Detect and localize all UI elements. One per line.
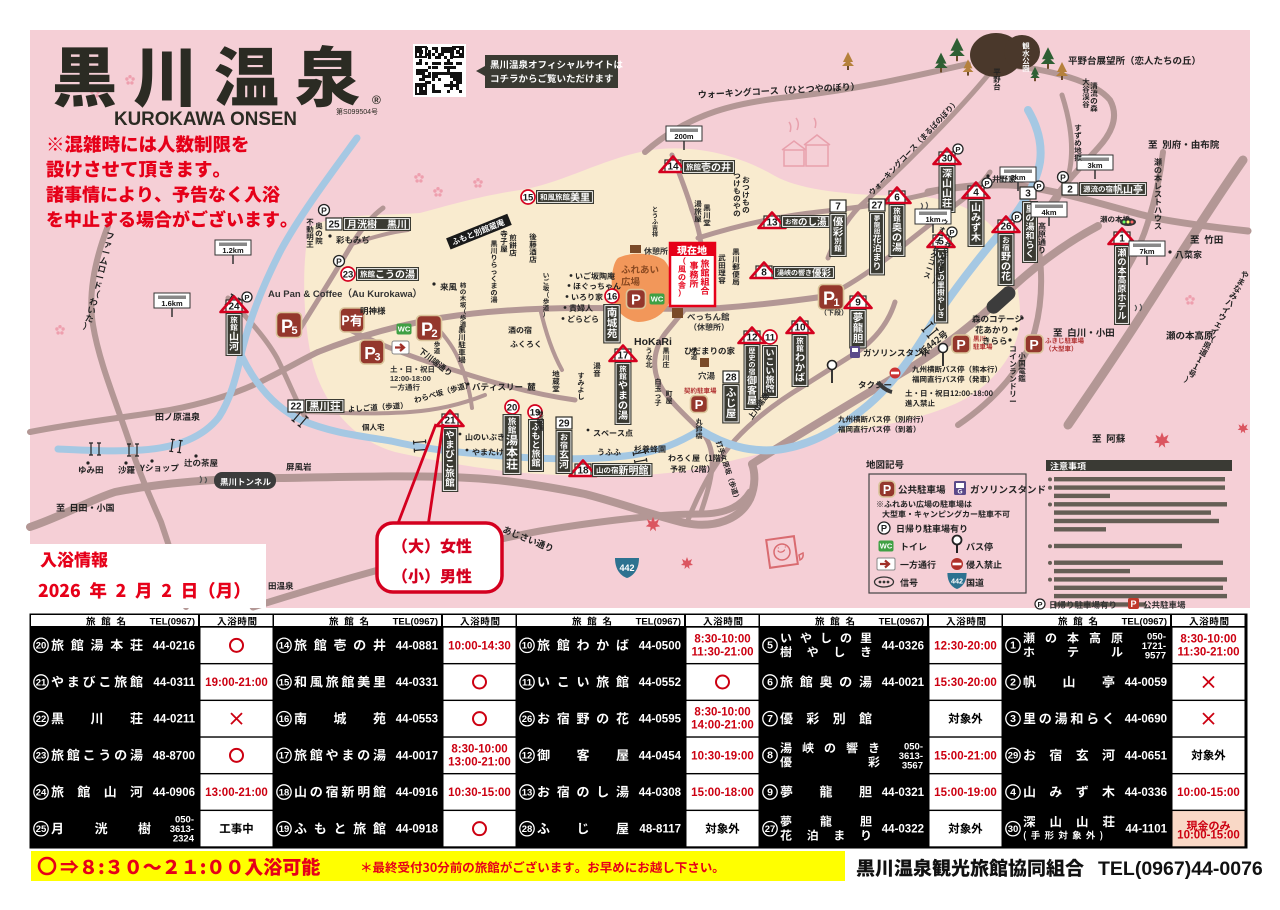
svg-text:3: 3 <box>1025 188 1031 199</box>
svg-text:442: 442 <box>951 576 963 585</box>
svg-text:44-0651: 44-0651 <box>1125 750 1168 762</box>
svg-text:21: 21 <box>36 677 47 688</box>
svg-text:15:30-20:00: 15:30-20:00 <box>934 677 997 689</box>
svg-text:20: 20 <box>36 641 47 652</box>
svg-text:15:00-21:00: 15:00-21:00 <box>934 750 997 762</box>
svg-text:44-0553: 44-0553 <box>396 714 438 726</box>
svg-text:7km: 7km <box>1139 247 1154 256</box>
svg-text:29: 29 <box>558 418 570 429</box>
svg-text:3: 3 <box>374 352 380 364</box>
svg-text:44-0216: 44-0216 <box>153 640 195 652</box>
svg-text:HoKaRi: HoKaRi <box>634 336 672 348</box>
svg-text:29: 29 <box>1008 751 1019 762</box>
svg-text:WC: WC <box>651 295 664 304</box>
svg-text:TEL(0967): TEL(0967) <box>1122 617 1167 628</box>
svg-text:P: P <box>1036 182 1041 191</box>
svg-text:13:00-21:00: 13:00-21:00 <box>205 787 268 799</box>
svg-text:44-0021: 44-0021 <box>882 677 925 689</box>
svg-text:KUROKAWA ONSEN: KUROKAWA ONSEN <box>114 109 297 130</box>
svg-text:44-0454: 44-0454 <box>639 750 682 762</box>
svg-text:10:00-15:00: 10:00-15:00 <box>1177 787 1240 799</box>
svg-text:P: P <box>1014 213 1019 222</box>
svg-text:®: ® <box>372 93 381 107</box>
svg-text:P: P <box>883 483 891 497</box>
svg-text:P: P <box>881 524 887 534</box>
svg-text:16: 16 <box>279 714 290 725</box>
svg-text:10: 10 <box>522 641 533 652</box>
svg-text:TEL(0967): TEL(0967) <box>879 617 924 628</box>
svg-text:15: 15 <box>523 192 534 203</box>
svg-text:19: 19 <box>530 407 541 418</box>
svg-text:P: P <box>984 179 989 188</box>
svg-text:4km: 4km <box>1041 208 1056 217</box>
svg-text:9: 9 <box>767 786 773 798</box>
svg-text:44-0331: 44-0331 <box>396 677 439 689</box>
svg-text:14: 14 <box>279 641 290 652</box>
svg-text:44-1101: 44-1101 <box>1125 824 1167 836</box>
svg-text:48-8117: 48-8117 <box>639 824 681 836</box>
svg-text:22: 22 <box>290 401 302 412</box>
svg-text:12: 12 <box>522 751 533 762</box>
svg-text:P: P <box>949 228 954 237</box>
svg-text:P: P <box>631 293 641 309</box>
svg-text:44-0918: 44-0918 <box>396 824 439 836</box>
svg-text:6: 6 <box>767 676 773 688</box>
svg-text:11: 11 <box>765 332 776 343</box>
svg-text:2324: 2324 <box>173 834 195 845</box>
svg-text:44-0059: 44-0059 <box>1125 677 1167 689</box>
svg-text:44-0906: 44-0906 <box>153 787 195 799</box>
svg-text:1.2km: 1.2km <box>222 246 244 255</box>
svg-text:22: 22 <box>36 714 47 725</box>
svg-text:15:00-19:00: 15:00-19:00 <box>934 787 997 799</box>
svg-text:P: P <box>244 293 249 302</box>
svg-text:7: 7 <box>767 713 773 725</box>
svg-text:11: 11 <box>522 677 533 688</box>
svg-text:4: 4 <box>1010 786 1016 798</box>
svg-text:10:30-19:00: 10:30-19:00 <box>691 750 754 762</box>
svg-text:P: P <box>1130 599 1136 609</box>
svg-text:44-0017: 44-0017 <box>396 750 438 762</box>
svg-text:P: P <box>336 256 342 266</box>
svg-text:P: P <box>1037 600 1042 609</box>
svg-text:44-0500: 44-0500 <box>639 640 681 652</box>
svg-text:9577: 9577 <box>1145 650 1166 661</box>
svg-text:10:00-14:30: 10:00-14:30 <box>448 640 511 652</box>
svg-text:200m: 200m <box>674 132 694 141</box>
svg-text:7: 7 <box>835 201 841 212</box>
svg-text:1: 1 <box>833 297 839 309</box>
svg-text:44-0552: 44-0552 <box>639 677 681 689</box>
svg-text:10:30-15:00: 10:30-15:00 <box>448 787 511 799</box>
svg-text:3567: 3567 <box>902 760 923 771</box>
svg-text:5: 5 <box>291 325 297 337</box>
svg-text:14:00-21:00: 14:00-21:00 <box>691 720 754 732</box>
svg-text:44-0311: 44-0311 <box>153 677 195 689</box>
svg-text:44-0881: 44-0881 <box>396 640 439 652</box>
svg-text:24: 24 <box>36 787 47 798</box>
svg-text:44-0336: 44-0336 <box>1125 787 1167 799</box>
svg-text:8:30-10:00: 8:30-10:00 <box>694 633 750 645</box>
svg-text:26: 26 <box>522 714 533 725</box>
svg-text:P: P <box>695 397 704 412</box>
svg-text:3km: 3km <box>1087 161 1102 170</box>
svg-text:WC: WC <box>880 542 893 551</box>
svg-text:8:30-10:00: 8:30-10:00 <box>1180 633 1236 645</box>
svg-text:44-0595: 44-0595 <box>639 714 682 726</box>
svg-text:2: 2 <box>431 328 437 340</box>
svg-text:12:30-20:00: 12:30-20:00 <box>934 640 997 652</box>
svg-text:23: 23 <box>343 269 354 280</box>
svg-text:20: 20 <box>507 402 518 413</box>
svg-text:44-0308: 44-0308 <box>639 787 682 799</box>
svg-text:44-0321: 44-0321 <box>882 787 925 799</box>
svg-text:5: 5 <box>767 640 773 652</box>
svg-text:Au Pan & Coffee（Au Kurokawa）: Au Pan & Coffee（Au Kurokawa） <box>268 288 422 300</box>
svg-text:44-0322: 44-0322 <box>882 824 924 836</box>
svg-text:TEL(0967): TEL(0967) <box>393 617 438 628</box>
svg-text:48-8700: 48-8700 <box>153 750 195 762</box>
svg-text:3: 3 <box>1010 713 1016 725</box>
svg-text:28: 28 <box>522 824 533 835</box>
svg-text:27: 27 <box>871 200 883 211</box>
svg-text:G: G <box>957 489 962 496</box>
svg-text:P: P <box>321 205 327 215</box>
svg-text:TEL(0967): TEL(0967) <box>636 617 681 628</box>
svg-text:8:30-10:00: 8:30-10:00 <box>451 743 507 755</box>
svg-text:13:00-21:00: 13:00-21:00 <box>448 756 511 768</box>
svg-text:8:30-10:00: 8:30-10:00 <box>694 707 750 719</box>
svg-text:2: 2 <box>1067 184 1073 195</box>
svg-text:1: 1 <box>1010 640 1016 652</box>
svg-text:1km: 1km <box>925 215 940 224</box>
svg-text:15:00-18:00: 15:00-18:00 <box>691 787 754 799</box>
svg-text:44-0916: 44-0916 <box>396 787 438 799</box>
svg-text:11:30-21:00: 11:30-21:00 <box>691 646 753 658</box>
svg-text:19:00-21:00: 19:00-21:00 <box>205 677 268 689</box>
svg-text:WC: WC <box>398 325 411 334</box>
svg-text:13: 13 <box>522 787 533 798</box>
svg-text:16: 16 <box>607 291 618 302</box>
svg-text:15: 15 <box>279 677 290 688</box>
svg-text:P: P <box>1029 336 1038 352</box>
svg-text:25: 25 <box>328 219 340 230</box>
svg-text:第S099504号: 第S099504号 <box>336 107 378 116</box>
svg-text:23: 23 <box>36 751 47 762</box>
svg-text:8: 8 <box>767 750 773 762</box>
svg-text:P: P <box>956 336 965 352</box>
svg-text:P: P <box>955 145 960 154</box>
svg-text:11:30-21:00: 11:30-21:00 <box>1177 646 1239 658</box>
svg-text:10:00-15:00: 10:00-15:00 <box>1177 830 1240 842</box>
svg-text:28: 28 <box>725 372 737 383</box>
svg-text:TEL(0967)44-0076: TEL(0967)44-0076 <box>1098 858 1263 880</box>
svg-text:44-0211: 44-0211 <box>153 714 195 726</box>
svg-text:30: 30 <box>1008 824 1019 835</box>
svg-text:1.6km: 1.6km <box>161 299 183 308</box>
svg-text:19: 19 <box>279 824 290 835</box>
svg-text:25: 25 <box>36 824 47 835</box>
svg-text:12:00-18:00: 12:00-18:00 <box>390 374 431 383</box>
svg-text:442: 442 <box>619 563 634 573</box>
svg-text:P: P <box>1060 172 1066 182</box>
svg-text:27: 27 <box>765 824 776 835</box>
svg-text:2: 2 <box>1010 676 1016 688</box>
svg-text:44-0326: 44-0326 <box>882 640 924 652</box>
svg-text:18: 18 <box>279 787 290 798</box>
svg-text:17: 17 <box>279 751 290 762</box>
svg-text:TEL(0967): TEL(0967) <box>150 617 195 628</box>
svg-text:44-0690: 44-0690 <box>1125 714 1167 726</box>
